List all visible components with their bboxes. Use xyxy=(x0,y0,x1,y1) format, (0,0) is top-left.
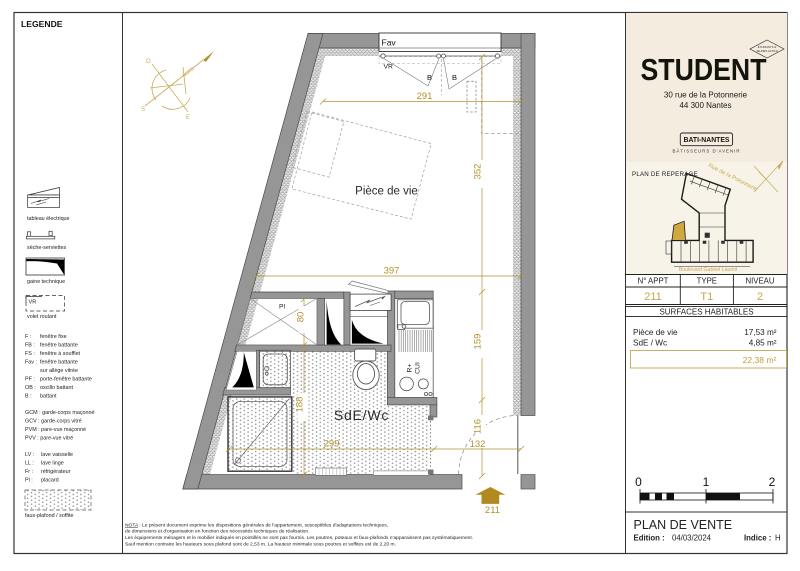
svg-text:fenêtre à soufflet: fenêtre à soufflet xyxy=(40,351,81,357)
svg-text:132: 132 xyxy=(470,439,486,450)
svg-text:N° APPT: N° APPT xyxy=(638,277,669,286)
svg-text:fenêtre battante: fenêtre battante xyxy=(40,360,78,366)
svg-text:BÂTISSEURS D'AVENIR: BÂTISSEURS D'AVENIR xyxy=(672,149,740,154)
svg-text:188: 188 xyxy=(295,397,306,413)
svg-text:VR: VR xyxy=(29,300,37,306)
svg-text:porte-fenêtre battante: porte-fenêtre battante xyxy=(40,377,92,383)
svg-text:Sauf mention contraire les hau: Sauf mention contraire les hauteurs sous… xyxy=(125,542,396,548)
svg-text:Pièce de vie: Pièce de vie xyxy=(633,328,678,337)
svg-text:TYPE: TYPE xyxy=(697,277,717,286)
svg-text:291: 291 xyxy=(417,91,433,102)
svg-text:STUDENT: STUDENT xyxy=(641,52,767,87)
svg-text:Pl: Pl xyxy=(279,304,286,311)
svg-text:B: B xyxy=(452,73,457,82)
svg-text:T1: T1 xyxy=(700,291,713,303)
svg-text:GCM : garde-corps maçonné: GCM : garde-corps maçonné xyxy=(25,410,95,416)
svg-text:Indice :: Indice : xyxy=(744,534,771,543)
svg-text:faux-plafond / soffite: faux-plafond / soffite xyxy=(25,513,73,519)
svg-text:GCV : garde-corps vitré: GCV : garde-corps vitré xyxy=(25,419,82,425)
svg-text:R+: R+ xyxy=(407,364,414,373)
svg-text:gaine technique: gaine technique xyxy=(27,279,65,285)
svg-text:VR: VR xyxy=(384,63,394,70)
svg-text:fenêtre battante: fenêtre battante xyxy=(40,343,78,349)
svg-text:211: 211 xyxy=(644,291,662,303)
svg-text:Pl :: Pl : xyxy=(25,478,33,484)
svg-text:volet roulant: volet roulant xyxy=(27,314,57,320)
svg-text:SdE / Wc: SdE / Wc xyxy=(633,339,667,348)
svg-text:PF :: PF : xyxy=(25,377,35,383)
svg-text:de dimensions et d'organisatio: de dimensions et d'organisation en fonct… xyxy=(125,529,309,535)
svg-text:Fav: Fav xyxy=(382,38,397,48)
svg-text:159: 159 xyxy=(473,334,484,350)
svg-text:lave vaisselle: lave vaisselle xyxy=(41,452,73,458)
svg-text:Fr :: Fr : xyxy=(25,469,33,475)
svg-text:Les équipements ménagers et le: Les équipements ménagers et le mobilier … xyxy=(125,535,473,541)
svg-text:B :: B : xyxy=(25,394,32,400)
svg-text:Pièce de vie: Pièce de vie xyxy=(355,186,418,198)
svg-text:2: 2 xyxy=(757,291,763,303)
svg-text:Boulevard Gabriel Lauriol: Boulevard Gabriel Lauriol xyxy=(679,267,738,273)
svg-text:2: 2 xyxy=(769,475,776,489)
svg-text:SdE/Wc: SdE/Wc xyxy=(334,407,389,423)
svg-text:sur allège vitrée: sur allège vitrée xyxy=(40,368,78,374)
svg-text:JEUNES ACTIFS: JEUNES ACTIFS xyxy=(756,49,778,53)
svg-text:211: 211 xyxy=(485,505,500,516)
svg-text:battant: battant xyxy=(40,394,57,400)
svg-text:B: B xyxy=(427,73,432,82)
svg-text:PLAN DE VENTE: PLAN DE VENTE xyxy=(634,518,733,532)
svg-text:17,53 m²: 17,53 m² xyxy=(744,328,777,337)
svg-text:fenêtre fixe: fenêtre fixe xyxy=(40,334,67,340)
svg-text:116: 116 xyxy=(473,419,484,434)
svg-text:tableau électrique: tableau électrique xyxy=(27,216,70,222)
svg-text:80: 80 xyxy=(296,312,307,323)
svg-text:LEGENDE: LEGENDE xyxy=(21,19,63,29)
svg-text:22,38 m²: 22,38 m² xyxy=(743,355,777,365)
svg-text:30 rue de la Potonnerie: 30 rue de la Potonnerie xyxy=(664,91,748,100)
svg-text:397: 397 xyxy=(384,266,400,277)
svg-text:réfrigérateur: réfrigérateur xyxy=(41,469,71,475)
svg-text:352: 352 xyxy=(473,164,484,180)
svg-text:S: S xyxy=(141,107,145,113)
svg-text:OB :: OB : xyxy=(25,385,36,391)
svg-text:299: 299 xyxy=(324,439,340,450)
svg-text:PVM : pare-vue maçonné: PVM : pare-vue maçonné xyxy=(25,427,86,433)
svg-text:0: 0 xyxy=(635,475,642,489)
svg-text:Fav :: Fav : xyxy=(25,360,37,366)
svg-text:sèche-serviettes: sèche-serviettes xyxy=(27,245,67,251)
svg-text:oscillo battant: oscillo battant xyxy=(40,385,73,391)
svg-text:04/03/2024: 04/03/2024 xyxy=(672,534,712,543)
svg-text:H: H xyxy=(775,534,781,543)
svg-text:LV :: LV : xyxy=(25,452,34,458)
svg-text:PVV : pare-vue vitré: PVV : pare-vue vitré xyxy=(25,436,73,442)
svg-text:O: O xyxy=(146,59,151,65)
svg-text:CUI: CUI xyxy=(415,362,422,374)
svg-text:E: E xyxy=(186,115,190,121)
svg-text:FB :: FB : xyxy=(25,343,35,349)
svg-text:SURFACES HABITABLES: SURFACES HABITABLES xyxy=(659,307,753,316)
svg-text:lave linge: lave linge xyxy=(41,461,64,467)
svg-text:1: 1 xyxy=(703,475,710,489)
svg-text:NIVEAU: NIVEAU xyxy=(745,277,774,286)
svg-text:placard: placard xyxy=(41,478,59,484)
svg-text:BATI-NANTES: BATI-NANTES xyxy=(684,135,730,144)
svg-text:FS :: FS : xyxy=(25,351,35,357)
svg-text:44 300 Nantes: 44 300 Nantes xyxy=(679,101,731,110)
svg-text:F :: F : xyxy=(25,334,31,340)
svg-text:Edition :: Edition : xyxy=(634,534,665,543)
svg-text:NOTA : Le présent document exp: NOTA : Le présent document exprime les d… xyxy=(125,523,388,529)
svg-text:4,85 m²: 4,85 m² xyxy=(749,339,777,348)
svg-text:LL :: LL : xyxy=(25,461,34,467)
